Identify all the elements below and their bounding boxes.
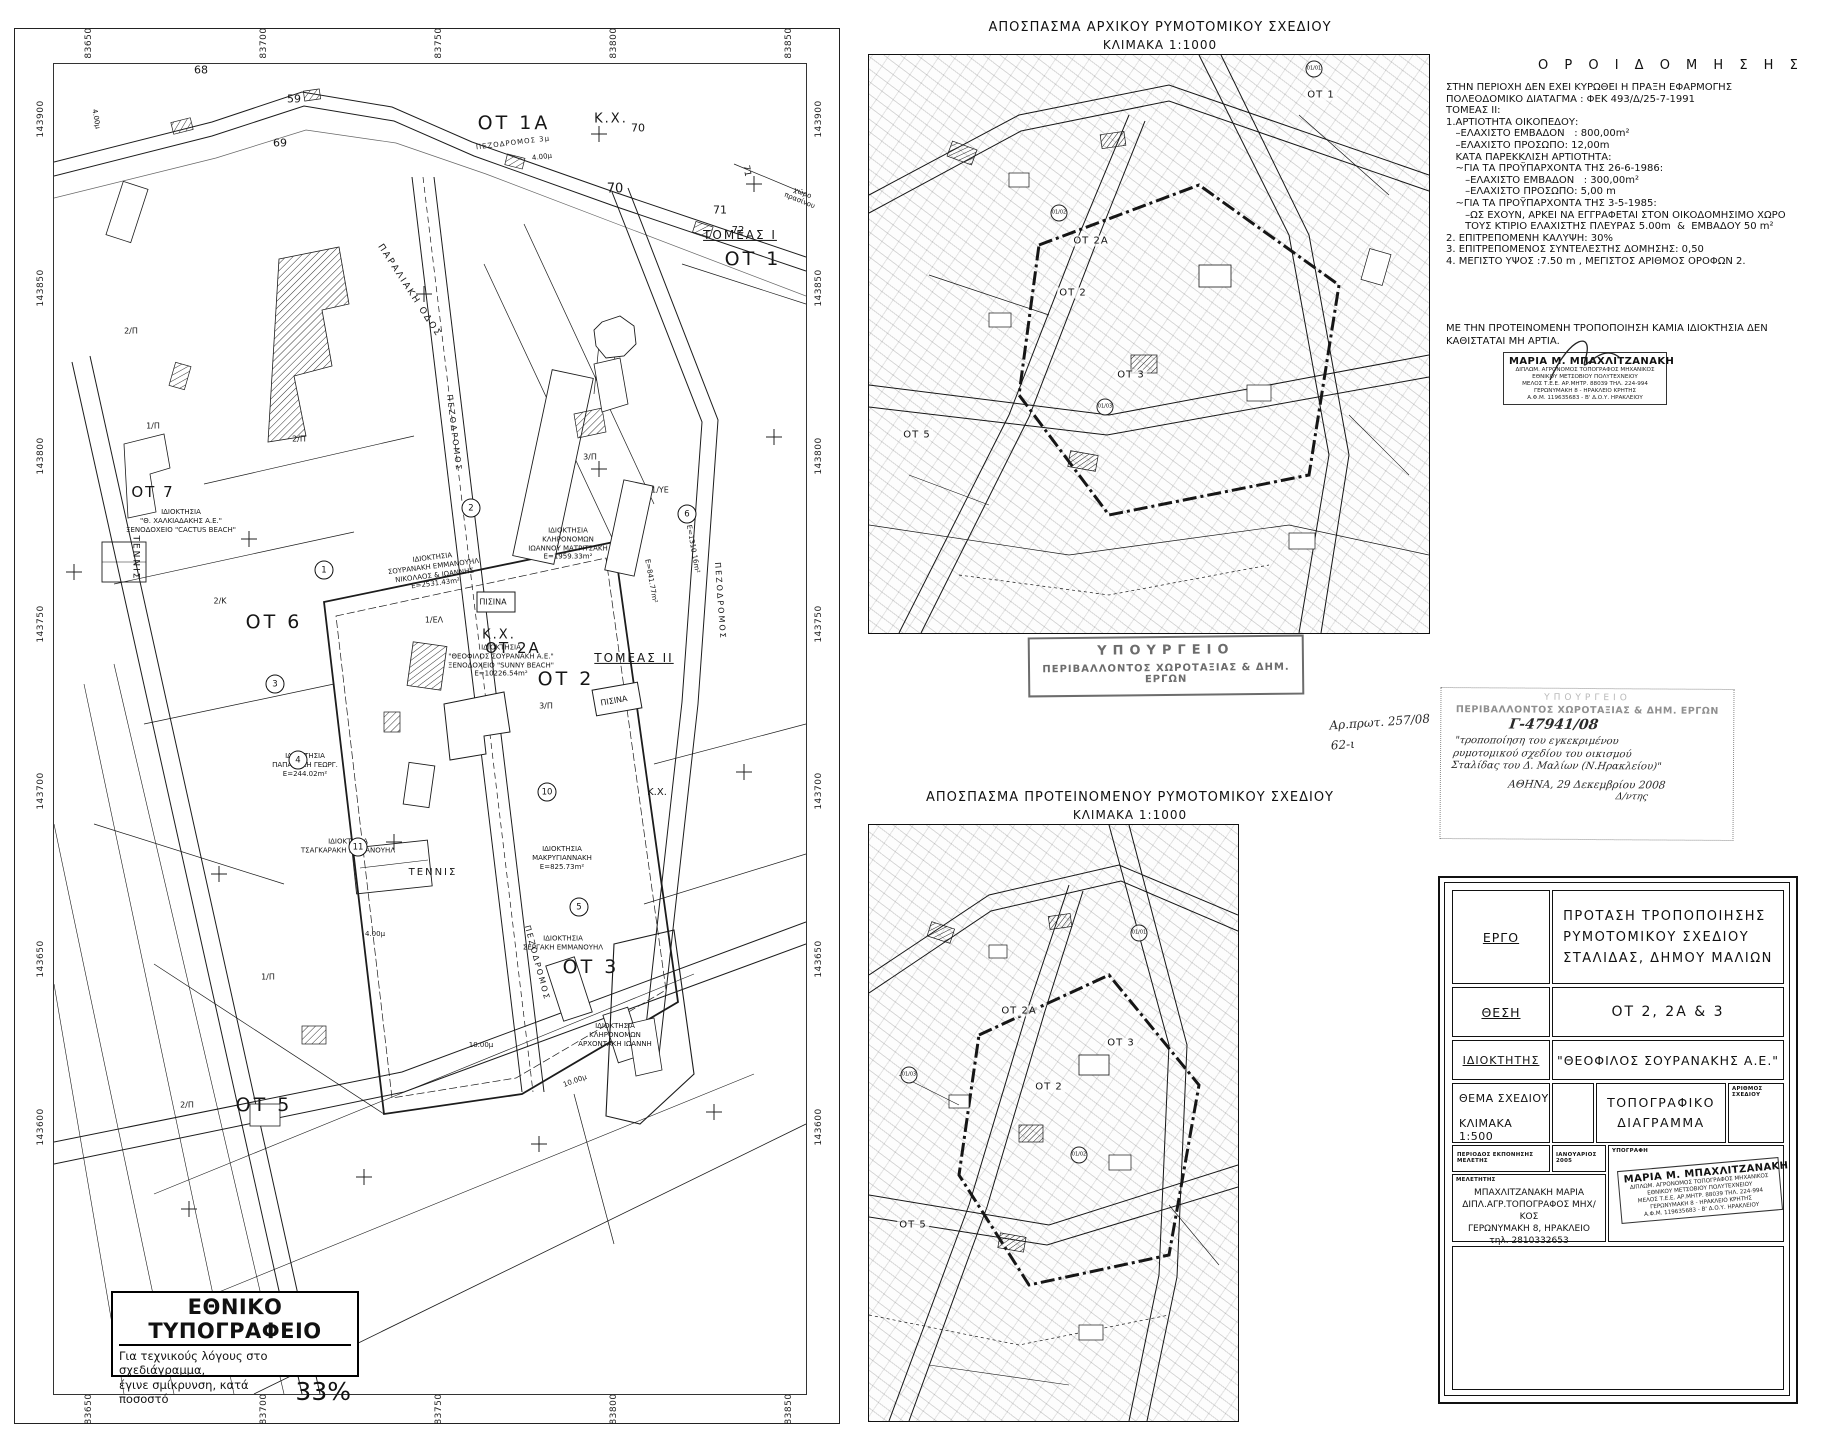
zone-code: 1/ΕΛ: [425, 615, 443, 624]
titleblock-thesi-cell: ΘΕΣΗ: [1452, 987, 1550, 1037]
period-value: ΙΑΝΟΥΑΡΙΟΣ 2005: [1553, 1146, 1605, 1164]
grid-coord-right: 143850: [814, 269, 824, 306]
node-number: 68: [194, 65, 208, 78]
block-label-ot6: ΟΤ 6: [246, 611, 303, 633]
grid-coord-top: 83750: [434, 27, 444, 58]
node-number: 70: [607, 181, 624, 196]
grid-coord-bottom: 83650: [84, 1393, 94, 1424]
titleblock-thema-cell: ΘΕΜΑ ΣΧΕΔΙΟΥ ΚΛΙΜΑΚΑ 1:500: [1452, 1083, 1550, 1143]
block-label-ot5: ΟΤ 5: [236, 1094, 293, 1116]
drawing-number-label: ΑΡΙΘΜΟΣ ΣΧΕΔΙΟΥ: [1732, 1086, 1783, 1098]
approval-place-date: ΑΘΗΝΑ, 29 Δεκεμβρίου 2008: [1448, 778, 1725, 792]
main-map-sheet: 83650 83700 83750 83800 83850 83650 8370…: [14, 28, 840, 1424]
printing-office-note: ΕΘΝΙΚΟ ΤΥΠΟΓΡΑΦΕΙΟ Για τεχνικούς λόγους …: [111, 1291, 359, 1377]
tennis-label: ΤΕΝΝΙΣ: [130, 536, 141, 581]
ergo-label: ΕΡΓΟ: [1483, 930, 1519, 945]
point-circle: 11: [349, 838, 368, 857]
block-label-ot1: ΟΤ 1: [725, 248, 782, 270]
public-space-label: Κ.Χ.: [594, 111, 628, 126]
reduction-note-line2: έγινε σμίκρυνση, κατά ποσοστό: [119, 1378, 289, 1406]
ministry-stamp: ΥΠΟΥΡΓΕΙΟ ΠΕΡΙΒΑΛΛΟΝΤΟΣ ΧΩΡΟΤΑΞΙΑΣ & ΔΗΜ…: [1028, 635, 1305, 698]
point-circle: 6: [678, 505, 697, 524]
property-label: ΙΔΙΟΚΤΗΣΙΑ ΚΛΗΡΟΝΟΜΩΝ ΑΡΧΟΝΤΑΚΗ ΙΩΑΝΝΗ: [578, 1022, 652, 1048]
grid-coord-left: 143650: [36, 940, 46, 977]
titleblock-period-cell: ΠΕΡΙΟΔΟΣ ΕΚΠΟΝΗΣΗΣ ΜΕΛΕΤΗΣ: [1452, 1145, 1550, 1172]
node-number: 59: [287, 94, 301, 107]
zone-code: 3/Π: [539, 701, 553, 710]
engineer-stamp: ΜΑΡΙΑ Μ. ΜΠΑΧΛΙΤΖΑΝΑΚΗ ΔΙΠΛΩΜ. ΑΓΡΟΝΟΜΟΣ…: [1617, 1157, 1783, 1224]
inset-block-label: ΟΤ 2Α: [1071, 236, 1110, 247]
titleblock-empty-cell: [1452, 1246, 1784, 1390]
inset-block-label: ΟΤ 1: [1305, 90, 1337, 101]
grid-coord-right: 143600: [814, 1108, 824, 1145]
grid-coord-left: 143800: [36, 437, 46, 474]
zone-code: 2/Π: [124, 326, 138, 335]
inset-proposed-map: ΟΤ 2Α ΟΤ 2 ΟΤ 3 ΟΤ 5 01/01 01/02 01/03: [868, 824, 1239, 1422]
property-label: ΙΔΙΟΚΤΗΣΙΑ "ΘΕΟΦΙΛΟΣ ΣΟΥΡΑΝΑΚΗ Α.Ε." ΞΕΝ…: [448, 644, 554, 679]
inset-block-label: ΟΤ 2: [1033, 1082, 1065, 1093]
titleblock-ergo-value-cell: ΠΡΟΤΑΣΗ ΤΡΟΠΟΠΟΙΗΣΗΣ ΡΥΜΟΤΟΜΙΚΟΥ ΣΧΕΔΙΟΥ…: [1552, 890, 1784, 984]
grid-coord-left: 143600: [36, 1108, 46, 1145]
tennis-label: ΤΕΝΝΙΣ: [409, 867, 458, 879]
grid-coord-top: 83700: [259, 27, 269, 58]
zone-code: 1/Π: [146, 421, 160, 430]
point-circle: 3: [266, 675, 285, 694]
reduction-percent: 33%: [295, 1377, 351, 1406]
building-terms-title: Ο Ρ Ο Ι Δ Ο Μ Η Σ Η Σ: [1538, 58, 1804, 73]
ministry-stamp-line1: ΥΠΟΥΡΓΕΙΟ: [1030, 642, 1302, 660]
protocol-margin-note: Αρ.πρωτ. 257/08 62-ι: [1329, 709, 1432, 756]
point-circle: 10: [538, 783, 557, 802]
engineer-stamp-line: ΔΙΠΛΩΜ. ΑΓΡΟΝΟΜΟΣ ΤΟΠΟΓΡΑΦΟΣ ΜΗΧΑΝΙΚΟΣ: [1509, 367, 1661, 374]
sector-label-2: ΤΟΜΕΑΣ ΙΙ: [594, 651, 673, 665]
thesi-label: ΘΕΣΗ: [1481, 1005, 1520, 1020]
point-circle: 1: [315, 561, 334, 580]
node-number: 71: [740, 164, 752, 177]
inset-original-title: ΑΠΟΣΠΑΣΜΑ ΑΡΧΙΚΟΥ ΡΥΜΟΤΟΜΙΚΟΥ ΣΧΕΔΙΟΥ: [988, 20, 1331, 35]
approval-protocol-number: Γ-47941/08: [1508, 716, 1726, 733]
inset-block-label: ΟΤ 5: [901, 430, 933, 441]
grid-coord-right: 143900: [814, 100, 824, 137]
klimaka-value: ΚΛΙΜΑΚΑ 1:500: [1459, 1117, 1549, 1143]
inset-proposed-title: ΑΠΟΣΠΑΣΜΑ ΠΡΟΤΕΙΝΟΜΕΝΟΥ ΡΥΜΟΤΟΜΙΚΟΥ ΣΧΕΔ…: [926, 790, 1334, 805]
point-circle: 4: [289, 751, 308, 770]
block-label-ot3: ΟΤ 3: [563, 956, 620, 978]
node-number: 69: [273, 138, 287, 151]
building-terms-note: ΜΕ ΤΗΝ ΠΡΟΤΕΙΝΟΜΕΝΗ ΤΡΟΠΟΠΟΙΗΣΗ ΚΑΜΙΑ ΙΔ…: [1446, 322, 1786, 348]
grid-coord-left: 143700: [36, 772, 46, 809]
measure-label: 10.00μ: [469, 1041, 494, 1049]
thema-label: ΘΕΜΑ ΣΧΕΔΙΟΥ: [1459, 1092, 1549, 1105]
building-terms-body: ΣΤΗΝ ΠΕΡΙΟΧΗ ΔΕΝ ΕΧΕΙ ΚΥΡΩΘΕΙ Η ΠΡΑΞΗ ΕΦ…: [1446, 82, 1818, 268]
titleblock-signature-cell: ΥΠΟΓΡΑΦΗ ΜΑΡΙΑ Μ. ΜΠΑΧΛΙΤΖΑΝΑΚΗ ΔΙΠΛΩΜ. …: [1608, 1145, 1784, 1242]
inset-original-map: ΟΤ 2Α ΟΤ 2 ΟΤ 3 ΟΤ 5 ΟΤ 1 01/01 01/02 01…: [868, 54, 1430, 634]
ergo-value: ΠΡΟΤΑΣΗ ΤΡΟΠΟΠΟΙΗΣΗΣ ΡΥΜΟΤΟΜΙΚΟΥ ΣΧΕΔΙΟΥ…: [1563, 906, 1773, 969]
grid-coord-bottom: 83800: [609, 1393, 619, 1424]
inset-block-label: ΟΤ 3: [1105, 1038, 1137, 1049]
block-label-ot7: ΟΤ 7: [131, 484, 174, 502]
drawing-type-value: ΤΟΠΟΓΡΑΦΙΚΟ ΔΙΑΓΡΑΜΜΑ: [1607, 1093, 1715, 1133]
approval-subject: "τροποποίηση του εγκεκριμένου ρυμοτομικο…: [1450, 735, 1728, 774]
approval-signature: Δ/ντης: [1538, 790, 1726, 802]
property-label: ΙΔΙΟΚΤΗΣΙΑ ΚΛΗΡΟΝΟΜΩΝ ΙΩΑΝΝΟΥ ΜΑΤΡΙΤΣΑΚΗ…: [528, 527, 607, 562]
grid-coord-right: 143750: [814, 605, 824, 642]
ministry-stamp-line2: ΠΕΡΙΒΑΛΛΟΝΤΟΣ ΧΩΡΟΤΑΞΙΑΣ & ΔΗΜ. ΕΡΓΩΝ: [1030, 662, 1302, 687]
engineer-stamp-line: ΜΕΛΟΣ Τ.Ε.Ε. ΑΡ.ΜΗΤΡ. 88039 ΤΗΛ. 224-994: [1509, 381, 1661, 388]
zone-code: 3/Π: [583, 452, 597, 461]
property-label: ΙΔΙΟΚΤΗΣΙΑ ΜΑΚΡΥΓΙΑΝΝΑΚΗ Ε=825.73m²: [532, 845, 592, 871]
inset-point-circle: 01/02: [1071, 1147, 1088, 1164]
owner-value: "ΘΕΟΦΙΛΟΣ ΣΟΥΡΑΝΑΚΗΣ Α.Ε.": [1557, 1053, 1779, 1068]
engineer-stamp-line: ΓΕΡΩΝΥΜΑΚΗ 8 - ΗΡΑΚΛΕΙΟ ΚΡΗΤΗΣ: [1509, 388, 1661, 395]
grid-coord-left: 143850: [36, 269, 46, 306]
titleblock-ergo-cell: ΕΡΓΟ: [1452, 890, 1550, 984]
zone-code: 2/Π: [180, 1100, 194, 1109]
thesi-value: ΟΤ 2, 2Α & 3: [1611, 1004, 1724, 1020]
grid-coord-left: 143900: [36, 100, 46, 137]
grid-coord-top: 83800: [609, 27, 619, 58]
point-circle: 2: [462, 499, 481, 518]
printing-office-title: ΕΘΝΙΚΟ ΤΥΠΟΓΡΑΦΕΙΟ: [119, 1295, 351, 1346]
grid-coord-top: 83650: [84, 27, 94, 58]
reduction-note-line1: Για τεχνικούς λόγους στο σχεδιάγραμμα,: [119, 1349, 351, 1377]
public-space-label: Κ.Χ.: [647, 787, 667, 799]
inset-original-drawing: [869, 55, 1429, 633]
property-label: ΙΔΙΟΚΤΗΣΙΑ ΣΕΡΓΑΚΗ ΕΜΜΑΝΟΥΗΛ: [523, 934, 603, 952]
grid-coord-right: 143800: [814, 437, 824, 474]
titleblock-meletitis-cell: ΜΕΛΕΤΗΤΗΣ ΜΠΑΧΛΙΤΖΑΝΑΚΗ ΜΑΡΙΑ ΔΙΠΛ.ΑΓΡ.Τ…: [1452, 1174, 1606, 1242]
titleblock-thesi-value-cell: ΟΤ 2, 2Α & 3: [1552, 987, 1784, 1037]
inset-proposed-scale: ΚΛΙΜΑΚΑ 1:1000: [1073, 808, 1187, 822]
zone-code: 2/Π: [292, 434, 306, 443]
meletitis-label: ΜΕΛΕΤΗΤΗΣ: [1456, 1177, 1496, 1183]
approval-dept-line: ΠΕΡΙΒΑΛΛΟΝΤΟΣ ΧΩΡΟΤΑΞΙΑΣ & ΔΗΜ. ΕΡΓΩΝ: [1449, 704, 1725, 717]
node-number: 71: [713, 205, 727, 218]
block-label-ot1a: ΟΤ 1Α: [478, 112, 551, 134]
measure-label: 4.00μ: [365, 930, 385, 938]
inset-point-circle: 01/01: [1131, 925, 1148, 942]
inset-point-circle: 01/03: [901, 1067, 918, 1084]
main-map-frame: [53, 63, 807, 1395]
public-space-label: Κ.Χ.: [482, 627, 516, 642]
inset-point-circle: 01/01: [1306, 61, 1323, 78]
node-number: 72: [732, 225, 745, 237]
grid-coord-bottom: 83750: [434, 1393, 444, 1424]
engineer-stamp-name: ΜΑΡΙΑ Μ. ΜΠΑΧΛΙΤΖΑΝΑΚΗ: [1509, 356, 1661, 367]
grid-coord-left: 143750: [36, 605, 46, 642]
zone-code: 1/Π: [261, 972, 275, 981]
inset-point-circle: 01/03: [1097, 399, 1114, 416]
zone-code: 1/ΥΕ: [651, 485, 669, 494]
engineer-stamp-line: Α.Φ.Μ. 119635683 - Β' Δ.Ο.Υ. ΗΡΑΚΛΕΙΟΥ: [1509, 395, 1661, 402]
grid-coord-right: 143700: [814, 772, 824, 809]
main-map-drawing: [54, 64, 806, 1394]
period-label: ΠΕΡΙΟΔΟΣ ΕΚΠΟΝΗΣΗΣ ΜΕΛΕΤΗΣ: [1453, 1146, 1549, 1164]
zone-code: 2/Κ: [213, 596, 226, 605]
inset-block-label: ΟΤ 2: [1057, 288, 1089, 299]
point-circle: 5: [570, 898, 589, 917]
titleblock-drawing-type-cell: ΤΟΠΟΓΡΑΦΙΚΟ ΔΙΑΓΡΑΜΜΑ: [1596, 1083, 1726, 1143]
inset-original-scale: ΚΛΙΜΑΚΑ 1:1000: [1103, 38, 1217, 52]
titleblock-number-cell: ΑΡΙΘΜΟΣ ΣΧΕΔΙΟΥ: [1728, 1083, 1784, 1143]
ypografi-label: ΥΠΟΓΡΑΦΗ: [1612, 1148, 1648, 1154]
inset-point-circle: 01/02: [1051, 205, 1068, 222]
inset-block-label: ΟΤ 3: [1115, 370, 1147, 381]
titleblock-owner-cell: ΙΔΙΟΚΤΗΤΗΣ: [1452, 1040, 1550, 1080]
grid-coord-bottom: 83850: [784, 1393, 794, 1424]
meletitis-value: ΜΠΑΧΛΙΤΖΑΝΑΚΗ ΜΑΡΙΑ ΔΙΠΛ.ΑΓΡ.ΤΟΠΟΓΡΑΦΟΣ …: [1453, 1187, 1605, 1247]
titleblock-spacer-cell: [1552, 1083, 1594, 1143]
approval-ministry-faint: ΥΠΟΥΡΓΕΙΟ: [1449, 692, 1725, 704]
approval-stamp: ΥΠΟΥΡΓΕΙΟ ΠΕΡΙΒΑΛΛΟΝΤΟΣ ΧΩΡΟΤΑΞΙΑΣ & ΔΗΜ…: [1439, 687, 1734, 841]
titleblock-period-value-cell: ΙΑΝΟΥΑΡΙΟΣ 2005: [1552, 1145, 1606, 1172]
engineer-stamp-line: ΕΘΝΙΚΟΥ ΜΕΤΣΟΒΙΟΥ ΠΟΛΥΤΕΧΝΕΙΟΥ: [1509, 374, 1661, 381]
grid-coord-right: 143650: [814, 940, 824, 977]
scanned-urban-plan-sheet: { "main_map": { "top_coords": ["83650", …: [0, 0, 1825, 1444]
owner-label: ΙΔΙΟΚΤΗΤΗΣ: [1463, 1054, 1540, 1067]
property-label: ΙΔΙΟΚΤΗΣΙΑ "Θ. ΧΑΛΚΙΑΔΑΚΗΣ Α.Ε." ΞΕΝΟΔΟΧ…: [126, 508, 236, 534]
engineer-stamp: ΜΑΡΙΑ Μ. ΜΠΑΧΛΙΤΖΑΝΑΚΗ ΔΙΠΛΩΜ. ΑΓΡΟΝΟΜΟΣ…: [1503, 352, 1667, 405]
inset-block-label: ΟΤ 2Α: [999, 1006, 1038, 1017]
pool-label: ΠΙΣΙΝΑ: [479, 597, 506, 606]
titleblock-owner-value-cell: "ΘΕΟΦΙΛΟΣ ΣΟΥΡΑΝΑΚΗΣ Α.Ε.": [1552, 1040, 1784, 1080]
inset-block-label: ΟΤ 5: [897, 1220, 929, 1231]
inset-proposed-drawing: [869, 825, 1238, 1421]
node-number: 70: [631, 123, 645, 136]
grid-coord-top: 83850: [784, 27, 794, 58]
